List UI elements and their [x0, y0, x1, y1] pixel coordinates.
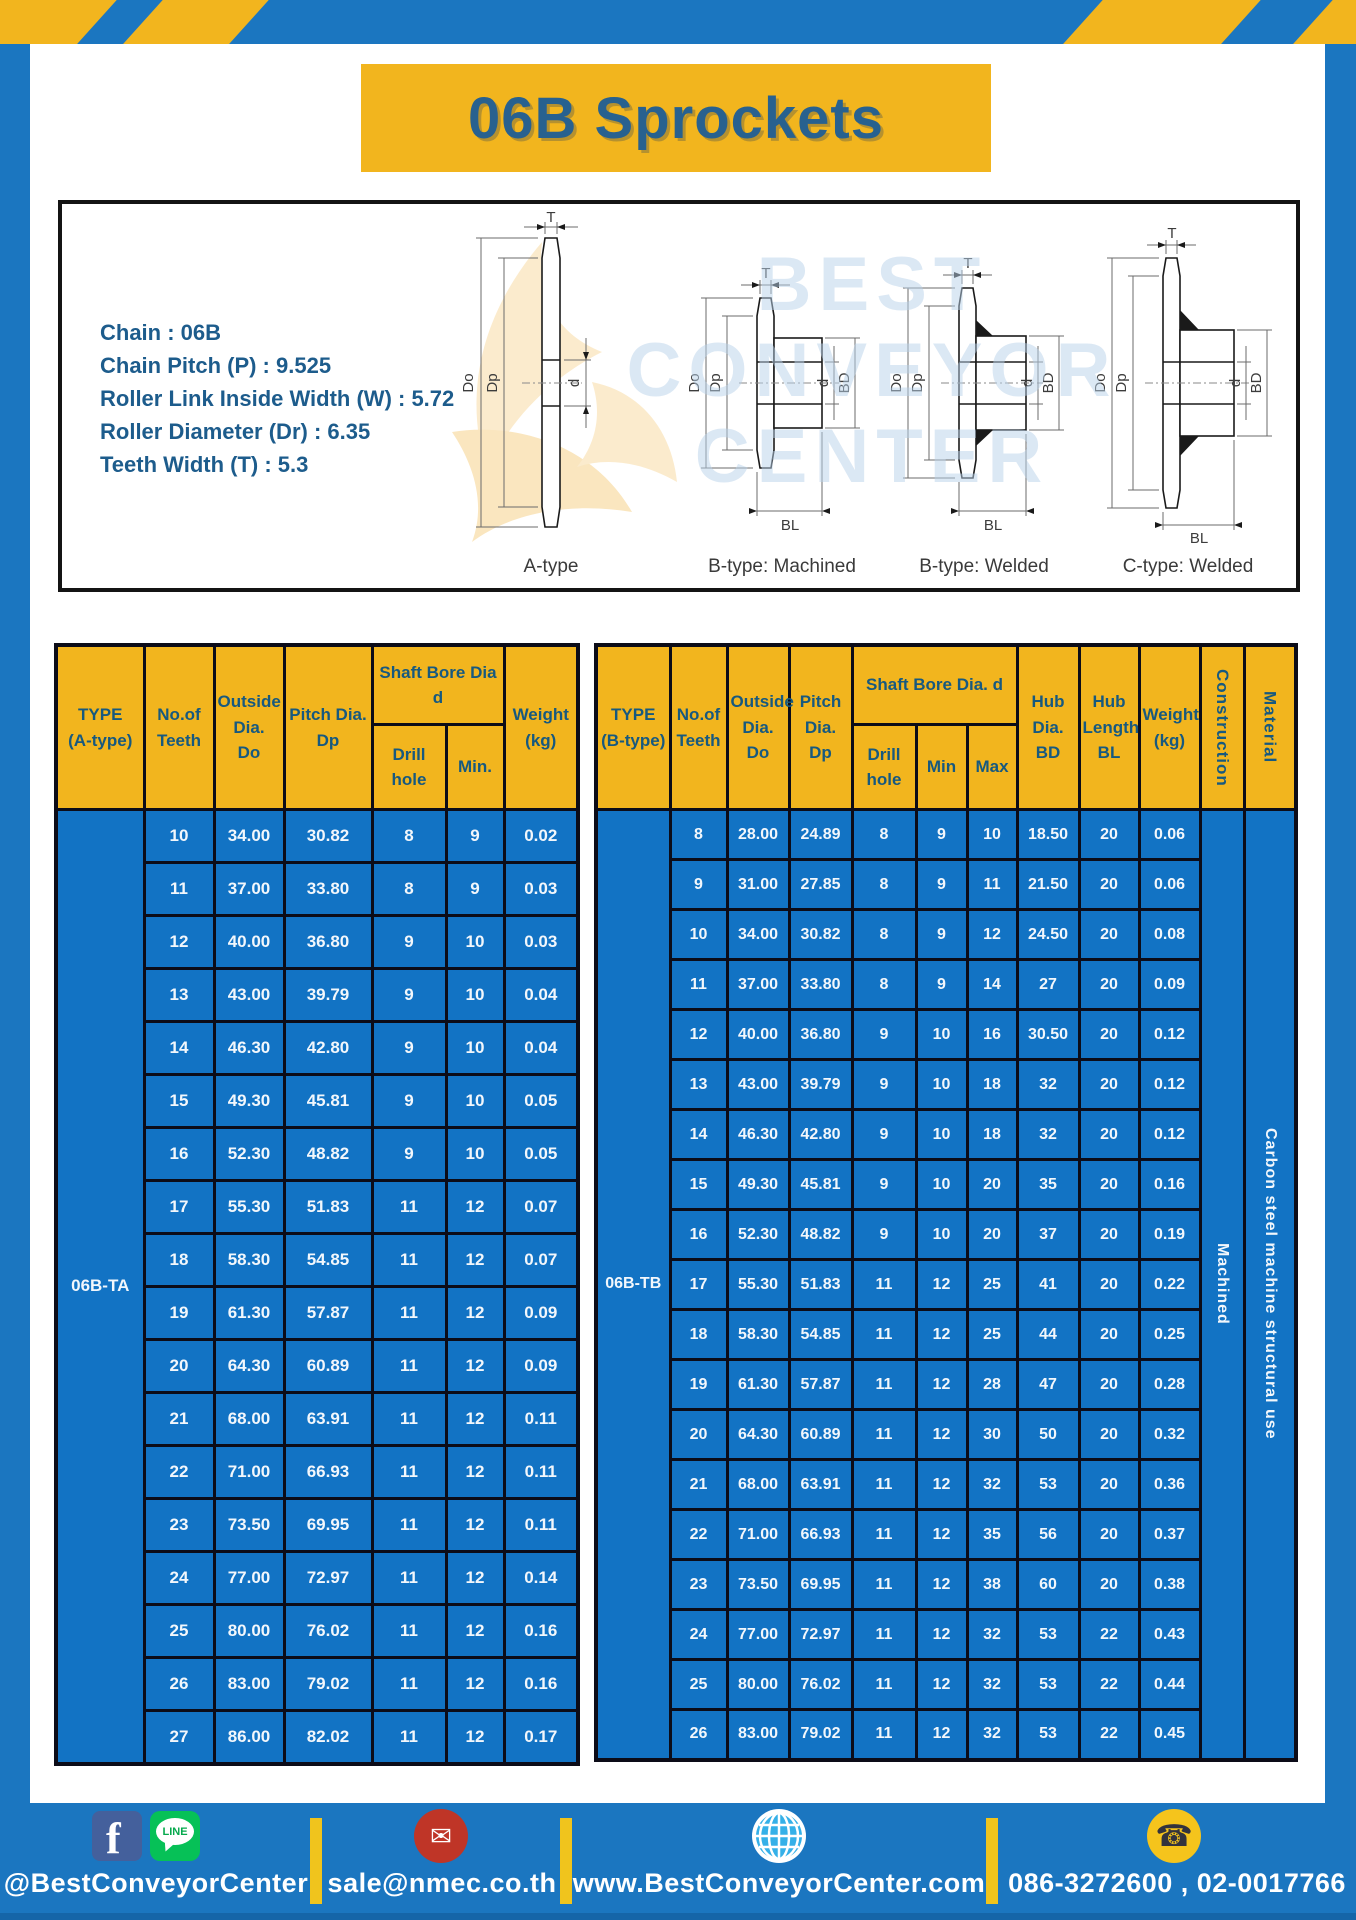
table-cell: 20 [144, 1340, 214, 1393]
table-cell: 71.00 [214, 1446, 284, 1499]
dim-label: T [761, 265, 770, 282]
table-cell: 53 [1017, 1660, 1079, 1710]
table-cell: 11 [852, 1360, 916, 1410]
table-cell: 54.85 [284, 1234, 372, 1287]
table-cell: 25 [670, 1660, 727, 1710]
table-cell: 0.32 [1139, 1410, 1200, 1460]
table-cell: 20 [1079, 1110, 1139, 1160]
table-cell: 20 [1079, 1360, 1139, 1410]
table-cell: 24 [670, 1610, 727, 1660]
table-cell: 76.02 [789, 1660, 852, 1710]
table-cell: 20 [1079, 910, 1139, 960]
table-cell: 35 [967, 1510, 1017, 1560]
table-cell: 0.11 [504, 1393, 578, 1446]
table-cell: 10 [916, 1210, 967, 1260]
table-cell: 58.30 [214, 1234, 284, 1287]
table-cell: 12 [916, 1460, 967, 1510]
table-cell: 0.02 [504, 810, 578, 863]
table-cell: 9 [372, 1022, 446, 1075]
table-row: 2683.0079.0211123253220.45 [596, 1710, 1296, 1760]
table-cell: 22 [1079, 1660, 1139, 1710]
table-cell: 11 [967, 860, 1017, 910]
table-cell: 11 [372, 1552, 446, 1605]
table-cell: 8 [852, 960, 916, 1010]
table-cell: 21 [144, 1393, 214, 1446]
table-cell: 18 [670, 1310, 727, 1360]
dim-label: Do [460, 373, 477, 392]
table-cell: 51.83 [284, 1181, 372, 1234]
table-cell: 17 [670, 1260, 727, 1310]
table-cell: 12 [446, 1658, 504, 1711]
table-cell: 9 [372, 1075, 446, 1128]
dim-label: Do [1092, 373, 1109, 392]
table-cell: 25 [967, 1260, 1017, 1310]
table-cell: 0.45 [1139, 1710, 1200, 1760]
table-cell: 41 [1017, 1260, 1079, 1310]
table-cell: 10 [916, 1160, 967, 1210]
table-cell: 9 [372, 916, 446, 969]
sprocket-diagram-b-machined: T Do Dp d BD BL [667, 210, 897, 555]
table-cell: 63.91 [284, 1393, 372, 1446]
table-cell: 22 [670, 1510, 727, 1560]
table-cell: 12 [916, 1660, 967, 1710]
table-cell: 12 [446, 1340, 504, 1393]
table-cell: 45.81 [789, 1160, 852, 1210]
table-cell: 12 [446, 1234, 504, 1287]
table-cell: 0.37 [1139, 1510, 1200, 1560]
table-cell: 23 [670, 1560, 727, 1610]
table-cell: 71.00 [727, 1510, 789, 1560]
table-cell: 33.80 [789, 960, 852, 1010]
table-cell: 53 [1017, 1460, 1079, 1510]
table-cell: 18 [967, 1060, 1017, 1110]
table-cell: 37 [1017, 1210, 1079, 1260]
table-cell: 11 [852, 1510, 916, 1560]
table-cell: 10 [446, 916, 504, 969]
table-cell: 27 [144, 1711, 214, 1764]
line-icon: LINE [150, 1811, 200, 1861]
table-cell: 9 [916, 910, 967, 960]
table-cell: 12 [916, 1560, 967, 1610]
table-cell: 14 [144, 1022, 214, 1075]
dim-label: Do [888, 373, 905, 392]
dim-label: Do [686, 373, 703, 392]
table-cell: 9 [852, 1060, 916, 1110]
col-header-shaft-bore: Shaft Bore Dia. d [852, 645, 1017, 725]
yellow-stripe [110, 0, 279, 44]
table-cell: 80.00 [214, 1605, 284, 1658]
dim-label: Dp [909, 373, 926, 392]
table-row: 1858.3054.8511122544200.25 [596, 1310, 1296, 1360]
table-cell: 11 [852, 1410, 916, 1460]
table-row: 1549.3045.819102035200.16 [596, 1160, 1296, 1210]
table-cell: 55.30 [727, 1260, 789, 1310]
table-cell: 30.50 [1017, 1010, 1079, 1060]
table-cell: 58.30 [727, 1310, 789, 1360]
footer-email: sale@nmec.co.th [322, 1861, 562, 1905]
table-cell: 73.50 [727, 1560, 789, 1610]
table-cell: 48.82 [284, 1128, 372, 1181]
footer-social-handle: @BestConveyorCenter [0, 1861, 312, 1905]
table-cell: 9 [916, 810, 967, 860]
table-cell: 8 [852, 860, 916, 910]
col-header-teeth: No.of Teeth [144, 645, 214, 810]
table-cell: 77.00 [214, 1552, 284, 1605]
table-cell: 16 [144, 1128, 214, 1181]
table-cell: 0.16 [1139, 1160, 1200, 1210]
table-cell: 13 [670, 1060, 727, 1110]
table-cell: 43.00 [214, 969, 284, 1022]
footer-phone-numbers: 086-3272600 , 02-0017766 [998, 1861, 1356, 1905]
table-cell: 83.00 [214, 1658, 284, 1711]
table-cell: 60 [1017, 1560, 1079, 1610]
table-cell: 12 [916, 1360, 967, 1410]
table-cell: 32 [967, 1660, 1017, 1710]
table-cell: 30 [967, 1410, 1017, 1460]
table-cell: 68.00 [727, 1460, 789, 1510]
table-cell: 12 [446, 1711, 504, 1764]
table-cell: 8 [852, 910, 916, 960]
table-cell: 52.30 [727, 1210, 789, 1260]
table-cell: 10 [446, 1128, 504, 1181]
table-row: 1343.0039.799101832200.12 [596, 1060, 1296, 1110]
table-cell: 35 [1017, 1160, 1079, 1210]
table-row: 2064.3060.8911123050200.32 [596, 1410, 1296, 1460]
table-cell: 63.91 [789, 1460, 852, 1510]
table-cell: 49.30 [214, 1075, 284, 1128]
table-cell: 12 [916, 1310, 967, 1360]
table-cell: 11 [852, 1460, 916, 1510]
table-cell: 36.80 [284, 916, 372, 969]
table-cell: 0.11 [504, 1446, 578, 1499]
table-cell: 10 [446, 969, 504, 1022]
table-cell: 12 [446, 1605, 504, 1658]
table-cell: 24.50 [1017, 910, 1079, 960]
table-cell: 83.00 [727, 1710, 789, 1760]
table-cell: 9 [852, 1010, 916, 1060]
table-cell: 11 [372, 1605, 446, 1658]
table-row: 2477.0072.9711123253220.43 [596, 1610, 1296, 1660]
table-cell: 20 [1079, 1060, 1139, 1110]
table-cell: 25 [144, 1605, 214, 1658]
diagram-label: A-type [524, 556, 579, 578]
table-row: 2271.0066.9311123556200.37 [596, 1510, 1296, 1560]
table-cell: 0.08 [1139, 910, 1200, 960]
table-cell: 57.87 [789, 1360, 852, 1410]
table-cell: 50 [1017, 1410, 1079, 1460]
table-cell: 11 [372, 1181, 446, 1234]
left-border-strip [0, 0, 30, 1920]
dim-label: Dp [484, 373, 501, 392]
table-cell: 28 [967, 1360, 1017, 1410]
spec-line: Teeth Width (T) : 5.3 [100, 448, 454, 481]
table-cell: 40.00 [214, 916, 284, 969]
table-cell: 43.00 [727, 1060, 789, 1110]
table-cell: 12 [446, 1446, 504, 1499]
table-cell: 20 [1079, 1010, 1139, 1060]
table-cell: 32 [1017, 1110, 1079, 1160]
table-cell: 0.12 [1139, 1110, 1200, 1160]
diagram-label: B-type: Machined [708, 556, 856, 578]
page-title: 06B Sprockets [468, 85, 884, 152]
dim-label: BD [1248, 372, 1265, 393]
table-cell: 11 [372, 1234, 446, 1287]
table-cell: 0.05 [504, 1128, 578, 1181]
footer-contact-bar: f LINE @BestConveyorCenter ✉ sale@nmec.c… [0, 1803, 1356, 1920]
table-cell: 9 [916, 860, 967, 910]
table-cell: 0.07 [504, 1234, 578, 1287]
table-cell: 64.30 [727, 1410, 789, 1460]
table-a-type: TYPE (A-type) No.of Teeth Outside Dia. D… [54, 643, 580, 1766]
table-cell: 12 [446, 1393, 504, 1446]
table-row: 06B-TB828.0024.89891018.50200.06Machined… [596, 810, 1296, 860]
table-cell: 9 [852, 1160, 916, 1210]
table-cell: 11 [852, 1710, 916, 1760]
table-cell: 0.07 [504, 1181, 578, 1234]
table-cell: 16 [967, 1010, 1017, 1060]
table-cell: 24.89 [789, 810, 852, 860]
table-cell: 0.09 [504, 1287, 578, 1340]
col-header-pitch-dia: Pitch Dia. Dp [789, 645, 852, 810]
table-cell: 73.50 [214, 1499, 284, 1552]
table-b-type: TYPE (B-type) No.of Teeth Outside Dia. D… [594, 643, 1298, 1762]
table-cell: 19 [144, 1287, 214, 1340]
table-cell: 25 [967, 1310, 1017, 1360]
table-cell: 0.04 [504, 1022, 578, 1075]
col-header-hub-dia: Hub Dia. BD [1017, 645, 1079, 810]
col-header-shaft-bore: Shaft Bore Dia d [372, 645, 504, 725]
table-cell: 79.02 [284, 1658, 372, 1711]
table-row: 1446.3042.809101832200.12 [596, 1110, 1296, 1160]
table-cell: 0.05 [504, 1075, 578, 1128]
table-cell: 11 [372, 1287, 446, 1340]
table-cell: 10 [916, 1060, 967, 1110]
table-cell: 68.00 [214, 1393, 284, 1446]
table-cell: 0.03 [504, 916, 578, 969]
table-cell: 10 [446, 1022, 504, 1075]
table-cell: 24 [144, 1552, 214, 1605]
table-cell: 61.30 [214, 1287, 284, 1340]
sprocket-diagram-a-type: T Do Dp d [426, 210, 676, 555]
col-header-weight: Weight (kg) [1139, 645, 1200, 810]
table-cell: 0.38 [1139, 1560, 1200, 1610]
table-row: 1961.3057.8711122847200.28 [596, 1360, 1296, 1410]
table-cell: 31.00 [727, 860, 789, 910]
table-cell: 0.19 [1139, 1210, 1200, 1260]
table-cell: 53 [1017, 1610, 1079, 1660]
title-banner: 06B Sprockets [361, 64, 991, 172]
table-cell: 9 [372, 969, 446, 1022]
table-cell: 27.85 [789, 860, 852, 910]
table-cell: 44 [1017, 1310, 1079, 1360]
table-cell: 8 [372, 810, 446, 863]
col-header-type: TYPE (A-type) [56, 645, 144, 810]
sprocket-diagram-b-welded: T Do Dp d BD BL [869, 210, 1099, 555]
table-cell: 0.14 [504, 1552, 578, 1605]
table-cell: 0.06 [1139, 860, 1200, 910]
table-cell: 30.82 [789, 910, 852, 960]
col-header-pitch-dia: Pitch Dia. Dp [284, 645, 372, 810]
table-cell: 51.83 [789, 1260, 852, 1310]
table-cell: 16 [670, 1210, 727, 1260]
dim-label: BD [836, 372, 853, 393]
table-cell: 10 [144, 810, 214, 863]
spec-line: Roller Link Inside Width (W) : 5.72 [100, 382, 454, 415]
table-cell: 0.43 [1139, 1610, 1200, 1660]
table-cell: 14 [967, 960, 1017, 1010]
table-cell: 82.02 [284, 1711, 372, 1764]
table-cell: 0.16 [504, 1658, 578, 1711]
table-cell: 76.02 [284, 1605, 372, 1658]
col-header-material: Material [1244, 645, 1296, 810]
table-cell: 11 [852, 1560, 916, 1610]
table-cell: 20 [1079, 1460, 1139, 1510]
table-cell: 26 [670, 1710, 727, 1760]
table-cell: 11 [852, 1260, 916, 1310]
facebook-icon: f [92, 1811, 142, 1861]
table-cell: 20 [1079, 1260, 1139, 1310]
table-cell: 66.93 [284, 1446, 372, 1499]
table-cell: 37.00 [727, 960, 789, 1010]
spec-line: Chain Pitch (P) : 9.525 [100, 349, 454, 382]
table-cell: 49.30 [727, 1160, 789, 1210]
table-cell: 10 [916, 1010, 967, 1060]
table-row: 1034.0030.82891224.50200.08 [596, 910, 1296, 960]
table-cell: 12 [916, 1710, 967, 1760]
table-cell: 0.22 [1139, 1260, 1200, 1310]
table-cell: 19 [670, 1360, 727, 1410]
col-header-teeth: No.of Teeth [670, 645, 727, 810]
table-cell: 36.80 [789, 1010, 852, 1060]
table-cell: 9 [446, 810, 504, 863]
table-cell: 18.50 [1017, 810, 1079, 860]
col-header-min: Min [916, 725, 967, 810]
diagram-label: B-type: Welded [919, 556, 1049, 578]
table-cell: 0.03 [504, 863, 578, 916]
table-cell: 9 [852, 1210, 916, 1260]
table-cell: 55.30 [214, 1181, 284, 1234]
table-cell: 32 [967, 1610, 1017, 1660]
top-decorative-bar [0, 0, 1356, 44]
table-cell: 33.80 [284, 863, 372, 916]
spec-line: Chain : 06B [100, 316, 454, 349]
table-cell: 69.95 [789, 1560, 852, 1610]
col-header-outside-dia: Outside Dia. Do [727, 645, 789, 810]
table-cell: 22 [1079, 1710, 1139, 1760]
table-cell: 32 [967, 1460, 1017, 1510]
table-cell: 0.09 [504, 1340, 578, 1393]
type-cell: 06B-TA [56, 810, 144, 1764]
table-cell: 20 [1079, 960, 1139, 1010]
table-cell: 9 [446, 863, 504, 916]
sprocket-diagram-c-welded: T Do Dp d BD BL [1073, 210, 1303, 555]
table-cell: 12 [916, 1260, 967, 1310]
table-row: 2373.5069.9511123860200.38 [596, 1560, 1296, 1610]
col-header-weight: Weight (kg) [504, 645, 578, 810]
table-cell: 10 [916, 1110, 967, 1160]
construction-cell: Machined [1200, 810, 1244, 1760]
table-cell: 20 [1079, 1510, 1139, 1560]
table-cell: 64.30 [214, 1340, 284, 1393]
table-cell: 20 [1079, 1210, 1139, 1260]
dim-label: BL [1190, 530, 1208, 547]
table-cell: 18 [144, 1234, 214, 1287]
table-cell: 20 [670, 1410, 727, 1460]
table-cell: 12 [967, 910, 1017, 960]
table-cell: 11 [144, 863, 214, 916]
dim-label: Dp [707, 373, 724, 392]
table-cell: 0.06 [1139, 810, 1200, 860]
table-cell: 13 [144, 969, 214, 1022]
table-row: 1240.0036.809101630.50200.12 [596, 1010, 1296, 1060]
col-header-construction: Construction [1200, 645, 1244, 810]
table-cell: 47 [1017, 1360, 1079, 1410]
table-cell: 11 [372, 1499, 446, 1552]
footer-bottom-edge [0, 1913, 1356, 1920]
dim-label: BL [781, 517, 799, 534]
table-cell: 46.30 [727, 1110, 789, 1160]
table-cell: 0.12 [1139, 1010, 1200, 1060]
col-header-hub-length: Hub Length BL [1079, 645, 1139, 810]
table-cell: 37.00 [214, 863, 284, 916]
table-cell: 0.09 [1139, 960, 1200, 1010]
table-cell: 22 [144, 1446, 214, 1499]
globe-icon [752, 1809, 806, 1863]
col-header-max: Max [967, 725, 1017, 810]
table-cell: 27 [1017, 960, 1079, 1010]
table-cell: 20 [1079, 1310, 1139, 1360]
dim-label: T [963, 255, 972, 272]
table-cell: 10 [446, 1075, 504, 1128]
table-cell: 20 [967, 1160, 1017, 1210]
table-cell: 39.79 [284, 969, 372, 1022]
table-cell: 56 [1017, 1510, 1079, 1560]
table-cell: 72.97 [789, 1610, 852, 1660]
footer-website: www.BestConveyorCenter.com [572, 1861, 986, 1905]
table-cell: 12 [446, 1499, 504, 1552]
table-cell: 15 [670, 1160, 727, 1210]
table-cell: 40.00 [727, 1010, 789, 1060]
table-cell: 32 [1017, 1060, 1079, 1110]
footer-divider [310, 1818, 322, 1904]
table-cell: 79.02 [789, 1710, 852, 1760]
table-cell: 32 [967, 1710, 1017, 1760]
yellow-stripe [0, 0, 128, 44]
yellow-stripe [1050, 0, 1271, 44]
table-row: 1755.3051.8311122541200.22 [596, 1260, 1296, 1310]
table-row: 2168.0063.9111123253200.36 [596, 1460, 1296, 1510]
table-cell: 11 [372, 1340, 446, 1393]
table-cell: 39.79 [789, 1060, 852, 1110]
table-cell: 86.00 [214, 1711, 284, 1764]
table-cell: 12 [446, 1181, 504, 1234]
dim-label: T [1167, 225, 1176, 242]
table-row: 1652.3048.829102037200.19 [596, 1210, 1296, 1260]
table-cell: 22 [1079, 1610, 1139, 1660]
table-cell: 52.30 [214, 1128, 284, 1181]
dim-label: T [546, 210, 555, 226]
table-cell: 28.00 [727, 810, 789, 860]
table-cell: 21.50 [1017, 860, 1079, 910]
table-cell: 11 [372, 1446, 446, 1499]
table-cell: 38 [967, 1560, 1017, 1610]
dim-label: d [1019, 379, 1036, 387]
table-cell: 34.00 [214, 810, 284, 863]
table-cell: 77.00 [727, 1610, 789, 1660]
table-row: 931.0027.85891121.50200.06 [596, 860, 1296, 910]
table-cell: 11 [372, 1658, 446, 1711]
table-cell: 26 [144, 1658, 214, 1711]
